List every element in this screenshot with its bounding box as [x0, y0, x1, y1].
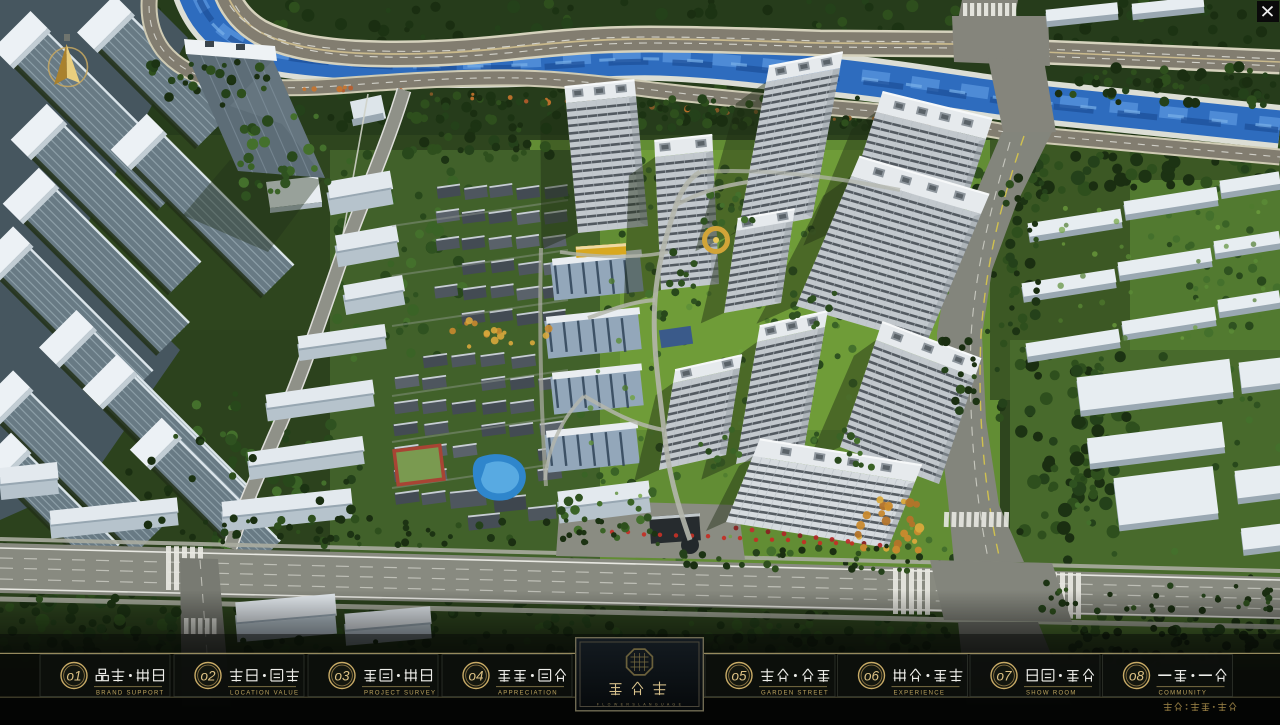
svg-text:APPRECIATION: APPRECIATION: [498, 691, 558, 697]
svg-text:o4: o4: [468, 669, 483, 684]
svg-text:o5: o5: [731, 669, 747, 684]
svg-text:o6: o6: [864, 669, 880, 684]
svg-text:EXPERIENCE: EXPERIENCE: [894, 691, 946, 697]
svg-text:o8: o8: [1129, 669, 1145, 684]
svg-text:LOCATION VALUE: LOCATION VALUE: [230, 691, 299, 697]
svg-text:F L O W E R S L A N G U A G: F L O W E R S L A N G U A G E: [597, 703, 682, 707]
svg-text:PROJECT SURVEY: PROJECT SURVEY: [364, 691, 436, 697]
svg-text:GARDEN STREET: GARDEN STREET: [761, 691, 829, 697]
svg-text:o1: o1: [66, 669, 81, 684]
svg-text:SHOW ROOM: SHOW ROOM: [1026, 691, 1077, 697]
svg-text:o7: o7: [996, 669, 1012, 684]
svg-text:BRAND SUPPORT: BRAND SUPPORT: [96, 691, 164, 697]
svg-text:o3: o3: [334, 669, 350, 684]
svg-text:o2: o2: [200, 669, 216, 684]
svg-text:COMMUNITY: COMMUNITY: [1159, 691, 1208, 697]
